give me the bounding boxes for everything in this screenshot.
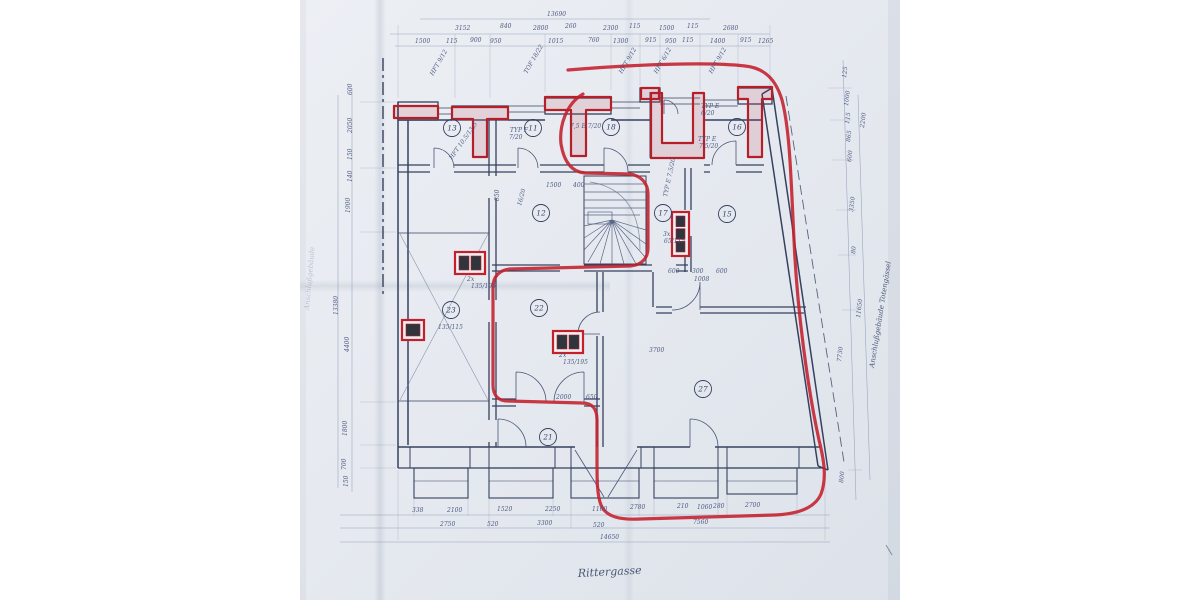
dimension-text: 6/20 bbox=[701, 110, 715, 117]
dimension-text: 1400 bbox=[710, 38, 725, 45]
dimension-text: 13690 bbox=[547, 11, 566, 18]
dimension-text: 865 bbox=[845, 130, 853, 142]
room-number-label: 27 bbox=[697, 385, 708, 394]
dimension-text: 338 bbox=[412, 507, 424, 514]
dimension-text: 115 bbox=[687, 23, 699, 30]
dimension-text: 7/20 bbox=[509, 134, 523, 141]
dimension-text: 2x bbox=[466, 276, 475, 283]
floor-plan-scan: 1311181612171523222721 13690315284028002… bbox=[0, 0, 1200, 600]
room-number-label: 13 bbox=[447, 124, 457, 133]
dimension-text: 210 bbox=[676, 503, 689, 510]
dimension-text: 135/195 bbox=[563, 359, 588, 366]
dimension-text: 2000 bbox=[555, 394, 571, 401]
dimension-text: 915 bbox=[645, 37, 657, 44]
dimension-text: 115 bbox=[446, 38, 458, 45]
dimension-text: TYP F bbox=[510, 127, 529, 134]
screenshot-root: 1311181612171523222721 13690315284028002… bbox=[0, 0, 1200, 600]
room-number-label: 12 bbox=[536, 209, 546, 218]
dimension-text: 800 bbox=[838, 471, 846, 483]
dimension-text: 760 bbox=[588, 37, 600, 44]
dimension-text: 2250 bbox=[544, 506, 560, 513]
dimension-text: 1800 bbox=[342, 421, 349, 436]
dimension-text: 1060 bbox=[697, 504, 712, 511]
room-number-label: 16 bbox=[732, 123, 742, 132]
dimension-text: 600 bbox=[347, 83, 354, 95]
dimension-text: 115 bbox=[629, 23, 641, 30]
dimension-text: 1160 bbox=[592, 506, 607, 513]
dimension-text: 520 bbox=[487, 521, 499, 528]
dimension-text: 400 bbox=[572, 182, 585, 189]
dimension-text: TYP E bbox=[701, 103, 720, 110]
dimension-text: 2800 bbox=[532, 25, 548, 32]
dimension-text: 3152 bbox=[455, 25, 470, 32]
red-marked-window-box bbox=[553, 331, 583, 353]
room-number-label: 15 bbox=[722, 210, 732, 219]
dimension-text: 2680 bbox=[722, 25, 738, 32]
dimension-text: 1500 bbox=[659, 25, 674, 32]
dimension-text: 600 bbox=[716, 268, 728, 275]
dimension-text: 950 bbox=[490, 38, 502, 45]
dimension-text: 1015 bbox=[548, 38, 563, 45]
dimension-text: 1900 bbox=[345, 198, 352, 213]
dimension-text: 950 bbox=[665, 38, 677, 45]
dimension-text: TYP E bbox=[698, 136, 717, 143]
dimension-text: 1500 bbox=[546, 182, 561, 189]
dimension-text: 600 bbox=[846, 150, 854, 162]
dimension-text: 2x bbox=[558, 352, 567, 359]
room-number-label: 17 bbox=[658, 209, 668, 218]
dimension-text: 7,5 E 7/20 bbox=[570, 123, 601, 130]
dimension-text: 840 bbox=[500, 23, 512, 30]
dimension-text: 115 bbox=[682, 37, 694, 44]
dimension-text: 600 bbox=[668, 268, 680, 275]
fold-crease-vertical-left bbox=[374, 0, 386, 600]
room-number-label: 18 bbox=[606, 123, 616, 132]
dimension-text: 700 bbox=[341, 458, 348, 470]
dimension-text: 14650 bbox=[600, 534, 619, 541]
dimension-text: 125 bbox=[841, 66, 849, 78]
dimension-text: 2100 bbox=[446, 507, 462, 514]
dimension-text: 3300 bbox=[537, 520, 552, 527]
dimension-text: 260 bbox=[564, 23, 577, 30]
room-number-label: 23 bbox=[445, 306, 456, 315]
paper-edge-right bbox=[888, 0, 900, 600]
dimension-text: 2750 bbox=[439, 521, 455, 528]
dimension-text: 7560 bbox=[693, 519, 708, 526]
dimension-text: 1500 bbox=[415, 38, 430, 45]
dimension-text: 850 bbox=[494, 189, 501, 201]
red-marked-window-box bbox=[455, 252, 485, 274]
dimension-text: 1008 bbox=[694, 276, 709, 283]
dimension-text: 150 bbox=[347, 148, 354, 160]
room-number-label: 11 bbox=[528, 124, 538, 133]
dimension-text: 13380 bbox=[333, 296, 340, 315]
dimension-text: 4400 bbox=[344, 337, 351, 353]
dimension-text: 650 bbox=[586, 394, 598, 401]
dimension-text: 135/195 bbox=[471, 283, 496, 290]
dimension-text: 300 bbox=[692, 268, 704, 275]
dimension-text: 1265 bbox=[758, 38, 773, 45]
dimension-text: 2700 bbox=[744, 502, 760, 509]
dimension-text: 900 bbox=[470, 37, 482, 44]
dimension-text: 280 bbox=[712, 503, 725, 510]
dimension-text: 80 bbox=[850, 246, 858, 255]
dimension-text: 1520 bbox=[497, 506, 512, 513]
fold-crease-horizontal bbox=[300, 280, 610, 292]
red-marked-window-box bbox=[402, 320, 424, 340]
dimension-text: 2780 bbox=[629, 504, 645, 511]
dimension-text: 135/115 bbox=[438, 324, 463, 331]
dimension-text: 915 bbox=[740, 37, 752, 44]
dimension-text: 65/115 bbox=[664, 238, 685, 245]
dimension-text: 150 bbox=[343, 475, 350, 487]
red-marked-window-box bbox=[672, 212, 689, 256]
dimension-text: 2300 bbox=[602, 25, 618, 32]
room-number-label: 22 bbox=[533, 304, 544, 313]
dimension-text: 115 bbox=[844, 112, 852, 124]
room-number-label: 21 bbox=[542, 433, 553, 442]
dimension-text: 7,5/20 bbox=[699, 143, 718, 150]
dimension-text: 3700 bbox=[649, 347, 664, 354]
dimension-text: 3x bbox=[663, 231, 671, 238]
dimension-text: 2050 bbox=[347, 118, 354, 134]
dimension-text: 1300 bbox=[613, 38, 628, 45]
dimension-text: 140 bbox=[347, 170, 354, 182]
dimension-text: 520 bbox=[593, 522, 605, 529]
